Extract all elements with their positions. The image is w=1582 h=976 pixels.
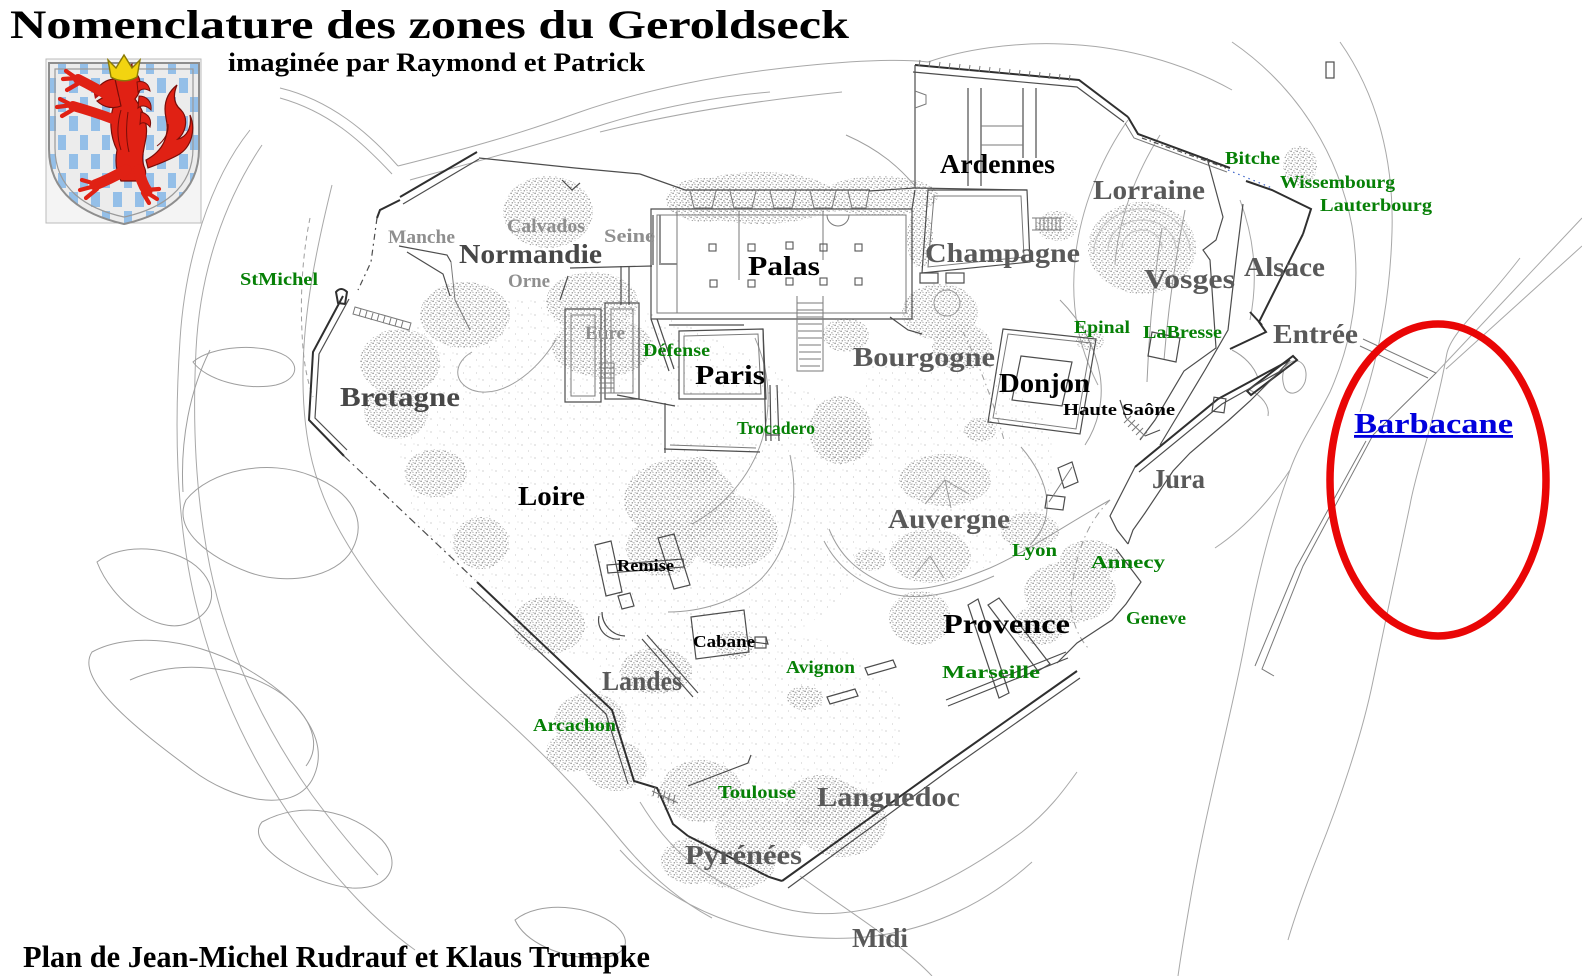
svg-text:Entrée: Entrée [1273,319,1358,349]
svg-text:Champagne: Champagne [925,238,1080,268]
svg-text:Trocadero: Trocadero [737,418,815,438]
svg-text:Barbacane: Barbacane [1354,409,1513,440]
svg-text:LaBresse: LaBresse [1143,322,1222,342]
svg-text:Bretagne: Bretagne [340,382,460,412]
svg-text:Calvados: Calvados [507,216,585,237]
svg-text:Marseille: Marseille [942,662,1040,682]
svg-text:Paris: Paris [695,360,765,390]
svg-text:Cabane: Cabane [693,632,756,651]
svg-text:Arcachon: Arcachon [533,715,616,735]
svg-text:Nomenclature des zones du Gero: Nomenclature des zones du Geroldseck [10,2,850,47]
svg-text:Toulouse: Toulouse [718,782,796,802]
svg-text:Lyon: Lyon [1012,540,1057,560]
svg-text:Orne: Orne [508,271,550,292]
svg-text:Ardennes: Ardennes [940,149,1055,179]
svg-text:Annecy: Annecy [1091,552,1165,572]
svg-text:Bitche: Bitche [1225,148,1280,168]
svg-text:Donjon: Donjon [999,368,1090,398]
svg-text:Languedoc: Languedoc [817,782,960,812]
svg-text:Palas: Palas [748,251,820,281]
svg-text:Normandie: Normandie [459,239,602,269]
svg-text:Epinal: Epinal [1074,317,1130,337]
svg-text:Défense: Défense [643,340,710,360]
svg-text:Alsace: Alsace [1244,252,1325,282]
svg-text:Landes: Landes [602,666,682,696]
svg-text:Auvergne: Auvergne [888,504,1010,534]
svg-text:Lorraine: Lorraine [1093,175,1205,205]
svg-text:Geneve: Geneve [1126,608,1186,628]
svg-text:Avignon: Avignon [786,657,855,677]
svg-text:Provence: Provence [943,609,1070,639]
svg-text:Loire: Loire [518,481,585,511]
svg-text:Haute Saône: Haute Saône [1063,400,1176,419]
svg-text:Seine: Seine [604,226,655,247]
svg-text:StMichel: StMichel [240,269,318,289]
svg-text:Plan de Jean-Michel Rudrauf et: Plan de Jean-Michel Rudrauf et Klaus Tru… [23,939,650,974]
svg-text:Jura: Jura [1152,464,1205,494]
svg-text:Remise: Remise [617,556,674,575]
svg-text:Wissembourg: Wissembourg [1280,172,1395,192]
svg-text:imaginée par Raymond et Patric: imaginée par Raymond et Patrick [228,48,646,77]
svg-text:Midi: Midi [852,923,908,953]
svg-text:Lauterbourg: Lauterbourg [1320,195,1432,215]
svg-text:Eure: Eure [585,323,625,344]
svg-text:Manche: Manche [388,227,455,248]
svg-text:Bourgogne: Bourgogne [853,342,995,372]
svg-text:Pyrénées: Pyrénées [685,840,802,870]
svg-text:Vosges: Vosges [1144,264,1235,294]
